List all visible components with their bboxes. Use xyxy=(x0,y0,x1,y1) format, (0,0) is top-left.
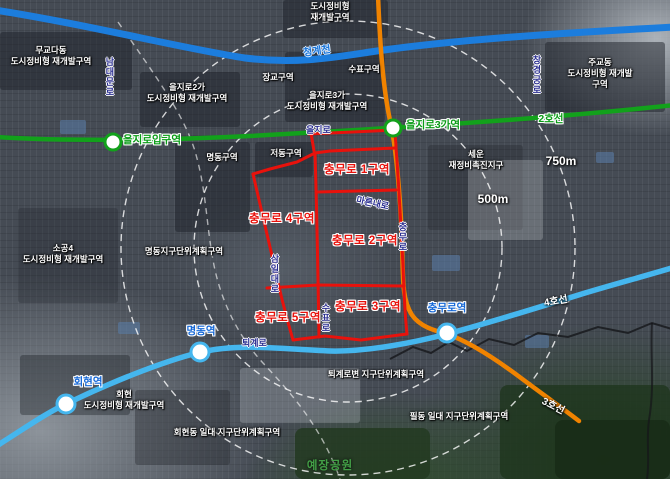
line-label-2: 2호선 xyxy=(538,113,563,127)
station-label-hoehyeon: 회현역 xyxy=(74,376,103,390)
station-label-euljiro-3ga: 을지로3가역 xyxy=(406,119,460,133)
road-label-changgyeonggungro: 창경궁로 xyxy=(531,55,540,95)
radius-label-750m: 750m xyxy=(546,154,577,170)
station-label-euljiro-ipgu: 을지로입구역 xyxy=(123,134,181,148)
zone-label-jugyodong: 주교동 도시정비형 재개발구역 xyxy=(565,57,635,90)
zone-label-top-center: 도시정비형 재개발구역 xyxy=(310,1,349,23)
planning-zone-boundary-black xyxy=(647,323,652,479)
zone-label-myeongdong-district: 명동지구단위계획구역 xyxy=(145,246,223,257)
zone-label-janggyo: 장교구역 xyxy=(262,72,293,83)
station-label-chungmuro: 충무로역 xyxy=(428,302,467,316)
station-marker-hoehyeon xyxy=(57,395,75,413)
station-label-myeongdong: 명동역 xyxy=(187,325,216,339)
park-label-yejang: 예장공원 xyxy=(307,459,353,474)
zone-label-pildong: 필동 일대 지구단위계획구역 xyxy=(410,411,509,422)
road-label-chungmuro: 충무로 xyxy=(397,222,406,252)
station-marker-myeongdong xyxy=(191,343,209,361)
zone-label-sogong4: 소공4 도시정비형 재개발구역 xyxy=(23,243,104,265)
subway-line4-blue xyxy=(0,267,670,447)
district-label-chungmuro-3: 충무로 3구역 xyxy=(335,300,401,315)
road-label-namdaemunro: 남대문로 xyxy=(104,57,113,97)
district-label-chungmuro-5: 충무로 5구역 xyxy=(255,311,321,326)
zone-label-jeodong-block: 저동구역 xyxy=(270,148,301,159)
zone-label-sewoon: 세운 재정비촉진지구 xyxy=(449,149,504,171)
zone-label-hoehyeon-redev: 회현 도시정비형 재개발구역 xyxy=(84,389,165,411)
district-label-chungmuro-4: 충무로 4구역 xyxy=(249,212,315,227)
zone-label-mugyodadong: 무교다동 도시정비형 재개발구역 xyxy=(11,45,92,67)
satellite-map: 무교다동 도시정비형 재개발구역 도시정비형 재개발구역 을지로2가 도시정비형… xyxy=(0,0,670,479)
zone-label-hoehyeondong: 회현동 일대 지구단위계획구역 xyxy=(174,427,280,438)
district-label-chungmuro-2: 충무로 2구역 xyxy=(332,234,398,249)
zone-label-supyo: 수표구역 xyxy=(348,64,379,75)
road-label-samildaero: 삼일대로 xyxy=(269,254,278,294)
road-label-euljiro: 을지로 xyxy=(306,126,331,135)
zone-label-toegyero-byeon: 퇴계로변 지구단위계획구역 xyxy=(328,369,424,380)
station-marker-euljiro-ipgu xyxy=(105,134,121,150)
radius-label-500m: 500m xyxy=(478,192,509,208)
road-label-supyoro: 수표로 xyxy=(320,303,329,333)
road-label-toegyero: 퇴계로 xyxy=(242,339,267,348)
station-marker-euljiro-3ga xyxy=(385,120,401,136)
zone-label-myeongdong-block: 명동구역 xyxy=(206,152,237,163)
subway-line3-orange xyxy=(378,0,579,421)
zone-label-euljiro-3ga: 을지로3가 도시정비형 재개발구역 xyxy=(287,90,368,112)
station-marker-chungmuro xyxy=(438,324,456,342)
district-label-chungmuro-1: 충무로 1구역 xyxy=(324,163,390,178)
zone-label-euljiro-2ga: 을지로2가 도시정비형 재개발구역 xyxy=(147,82,228,104)
